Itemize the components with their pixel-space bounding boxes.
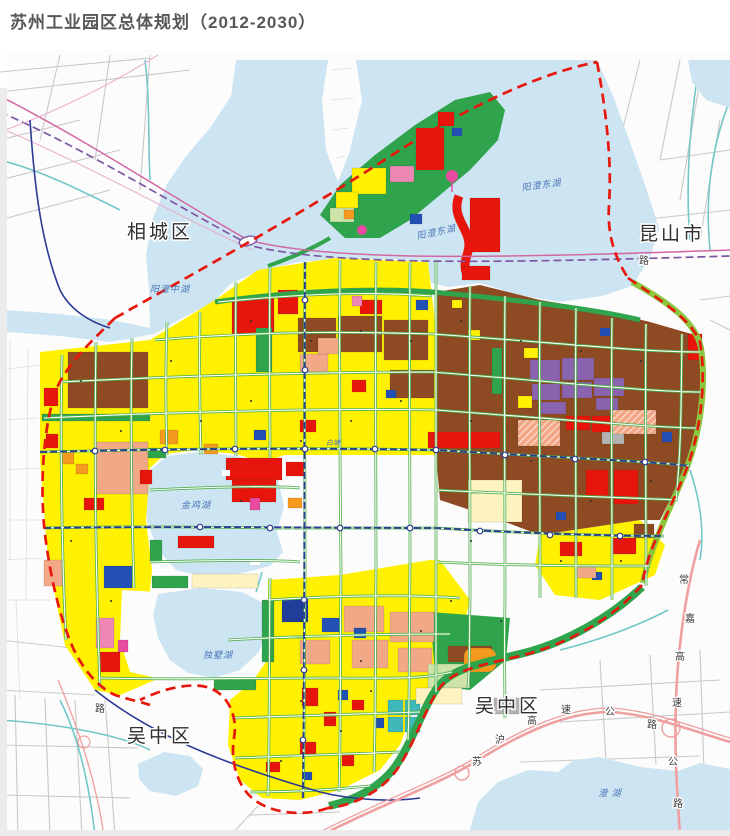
road-label-char: 路 bbox=[673, 797, 683, 810]
lake-label-jinji: 金鸡湖 bbox=[181, 500, 212, 510]
lake-label-dushu: 独墅湖 bbox=[203, 650, 234, 660]
road-label-char: 公 bbox=[605, 707, 615, 718]
road-label-char: 速 bbox=[561, 704, 571, 716]
road-label-char: 常 bbox=[679, 573, 689, 586]
district-label-kunshan: 昆山市 bbox=[639, 223, 705, 245]
road-label-char: 高 bbox=[527, 714, 537, 727]
lake-label-baitang: 白塘 bbox=[326, 439, 341, 447]
road-label-char: 嘉 bbox=[685, 612, 695, 625]
road-label-char: 路 bbox=[647, 718, 657, 731]
road-label-char: 路 bbox=[95, 702, 105, 715]
road-label-char: 沪 bbox=[495, 733, 505, 746]
road-label-char: 高 bbox=[675, 650, 685, 663]
district-label-wuzhong-west: 吴中区 bbox=[127, 725, 193, 747]
road-label-char: 苏 bbox=[472, 755, 482, 768]
page-title: 苏州工业园区总体规划（2012-2030） bbox=[10, 8, 316, 33]
master-plan-map: 相城区 昆山市 吴中区 吴中区 阳澄中湖 阳澄东湖 阳澄东湖 金鸡湖 独墅湖 澄… bbox=[0, 0, 730, 836]
lake-label-yangcheng-middle: 阳澄中湖 bbox=[150, 284, 191, 294]
road-label-char: 路 bbox=[639, 254, 649, 267]
bottom-frame bbox=[7, 830, 730, 836]
lake-label-cheng: 澄 湖 bbox=[598, 788, 623, 798]
left-frame bbox=[0, 88, 7, 836]
road-label-char: 公 bbox=[668, 757, 678, 768]
district-label-xiangcheng: 相城区 bbox=[127, 221, 193, 243]
road-label-char: 速 bbox=[672, 697, 682, 709]
district-label-wuzhong-east: 吴中区 bbox=[475, 695, 541, 717]
